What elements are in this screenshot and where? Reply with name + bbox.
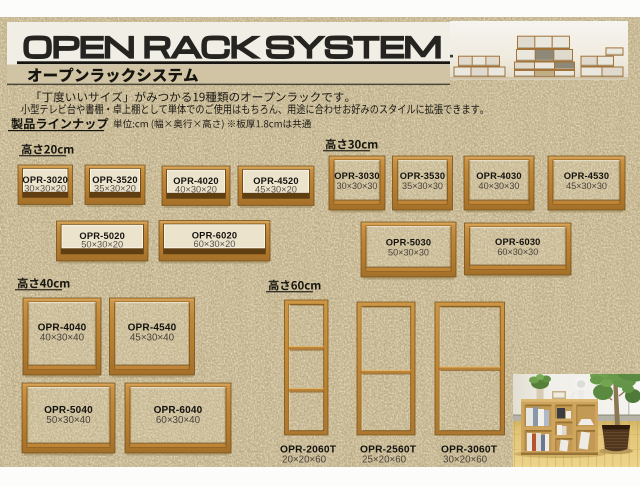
- svg-text:20×20×60: 20×20×60: [282, 455, 327, 466]
- svg-text:30×20×60: 30×20×60: [443, 455, 488, 466]
- svg-text:25×20×60: 25×20×60: [362, 455, 407, 466]
- svg-text:OPR-3030: OPR-3030: [334, 171, 380, 181]
- svg-text:35×30×20: 35×30×20: [94, 183, 136, 193]
- svg-text:30×30×20: 30×30×20: [24, 183, 66, 193]
- svg-text:OPR-4030: OPR-4030: [476, 171, 522, 181]
- svg-text:35×30×30: 35×30×30: [402, 181, 443, 191]
- svg-text:OPR-3530: OPR-3530: [400, 171, 446, 181]
- svg-text:45×30×20: 45×30×20: [255, 184, 297, 194]
- svg-text:40×30×40: 40×30×40: [40, 333, 85, 344]
- svg-text:60×30×30: 60×30×30: [497, 247, 538, 257]
- svg-text:60×30×20: 60×30×20: [194, 239, 236, 249]
- svg-text:30×30×30: 30×30×30: [337, 181, 378, 191]
- svg-text:40×30×30: 40×30×30: [479, 181, 520, 191]
- svg-text:50×30×20: 50×30×20: [81, 239, 123, 249]
- svg-text:50×30×40: 50×30×40: [46, 415, 91, 426]
- svg-text:OPR-4530: OPR-4530: [564, 171, 610, 181]
- svg-text:OPR-5030: OPR-5030: [386, 237, 432, 247]
- svg-text:45×30×30: 45×30×30: [566, 181, 607, 191]
- svg-text:45×30×40: 45×30×40: [130, 333, 175, 344]
- svg-text:50×30×30: 50×30×30: [388, 247, 429, 257]
- svg-text:40×30×20: 40×30×20: [175, 184, 217, 194]
- svg-text:OPR-6030: OPR-6030: [495, 237, 541, 247]
- svg-text:60×30×40: 60×30×40: [156, 415, 201, 426]
